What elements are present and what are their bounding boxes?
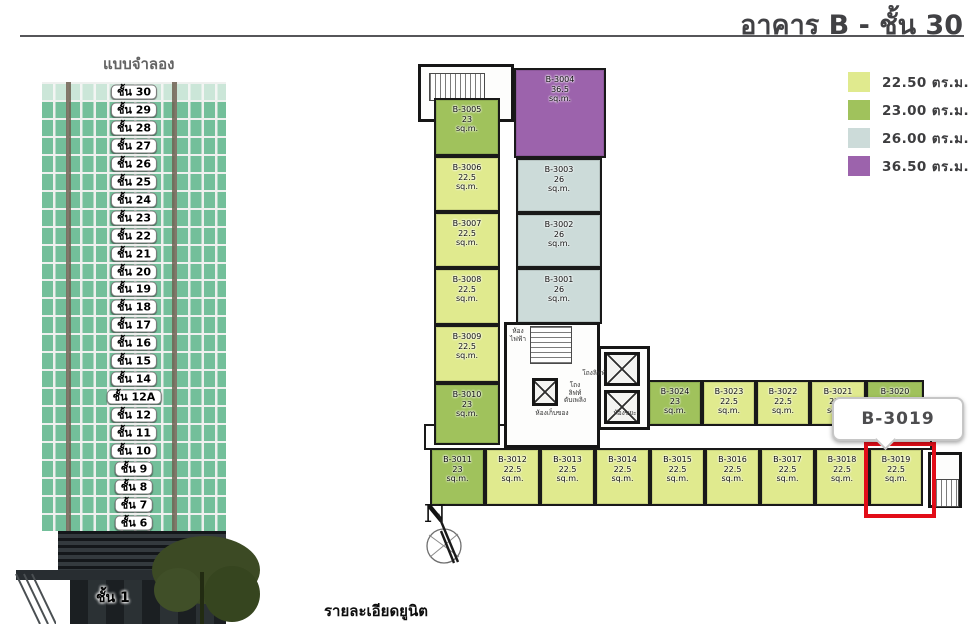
unit-area-label: 23 — [436, 115, 498, 125]
unit-id-label: B-3002 — [518, 220, 600, 230]
unit-area-label: 22.5 — [758, 397, 808, 407]
unit-id-label: B-3008 — [436, 275, 498, 285]
unit-id-label: B-3013 — [542, 455, 593, 465]
floor-label-10: ชั้น 10 — [111, 444, 157, 459]
unit-B-3003[interactable]: B-300326sq.m. — [516, 158, 602, 213]
unit-id-label: B-3018 — [817, 455, 867, 465]
floor-label-15: ชั้น 15 — [111, 354, 157, 369]
floorplan-page: อาคาร B - ชั้น 30 แบบจำลอง ชั้น 30ชั้น 2… — [0, 0, 979, 624]
unit-sqm-label: sq.m. — [432, 474, 483, 484]
unit-id-label: B-3020 — [868, 387, 922, 397]
elevator-shaft-icon — [604, 352, 640, 386]
legend-label: 36.50 ตร.ม. — [882, 155, 969, 177]
unit-sqm-label: sq.m. — [817, 474, 867, 484]
unit-sqm-label: sq.m. — [707, 474, 758, 484]
core-room-label-0: ห้อง ไฟฟ้า — [505, 328, 531, 343]
unit-B-3007[interactable]: B-300722.5sq.m. — [434, 212, 500, 268]
unit-area-label: 22.5 — [762, 465, 813, 475]
unit-B-3023[interactable]: B-302322.5sq.m. — [702, 380, 756, 426]
tower-mullion — [66, 82, 71, 531]
unit-B-3005[interactable]: B-300523sq.m. — [434, 98, 500, 156]
legend-swatch-icon — [848, 156, 870, 176]
stairs-icon — [935, 479, 959, 507]
unit-B-3004[interactable]: B-300436.5sq.m. — [514, 68, 606, 158]
core-room-label-4: ห้องขยะ — [608, 410, 642, 418]
unit-area-label: 22.5 — [436, 229, 498, 239]
unit-sqm-label: sq.m. — [436, 182, 498, 192]
floor-label-17: ชั้น 17 — [111, 318, 157, 333]
unit-B-3017[interactable]: B-301722.5sq.m. — [760, 448, 815, 506]
legend-label: 23.00 ตร.ม. — [882, 99, 969, 121]
elevator-shaft-icon — [532, 378, 558, 406]
floor-label-16: ชั้น 16 — [111, 336, 157, 351]
ground-floor-label: ชั้น 1 — [96, 587, 130, 609]
unit-sqm-label: sq.m. — [436, 238, 498, 248]
unit-sqm-label: sq.m. — [650, 406, 700, 416]
unit-sqm-label: sq.m. — [518, 184, 600, 194]
unit-B-3015[interactable]: B-301522.5sq.m. — [650, 448, 705, 506]
unit-B-3016[interactable]: B-301622.5sq.m. — [705, 448, 760, 506]
unit-id-label: B-3004 — [516, 75, 604, 85]
unit-id-label: B-3017 — [762, 455, 813, 465]
unit-area-label: 22.5 — [817, 465, 867, 475]
floor-label-7: ชั้น 7 — [115, 497, 153, 512]
compass-icon: N — [414, 498, 476, 574]
unit-area-label: 23 — [650, 397, 700, 407]
footer-caption: รายละเอียดยูนิต — [324, 599, 428, 623]
legend-swatch-icon — [848, 72, 870, 92]
unit-B-3001[interactable]: B-300126sq.m. — [516, 268, 602, 324]
model-title: แบบจำลอง — [103, 52, 174, 76]
unit-id-label: B-3016 — [707, 455, 758, 465]
podium-strut-lines — [14, 572, 56, 624]
unit-B-3022[interactable]: B-302222.5sq.m. — [756, 380, 810, 426]
floor-label-29: ชั้น 29 — [111, 102, 157, 117]
unit-id-label: B-3023 — [704, 387, 754, 397]
core-room-label-2: โถง ลิฟท์ ดับเพลิง — [562, 382, 588, 405]
floor-label-14: ชั้น 14 — [111, 372, 157, 387]
unit-id-label: B-3009 — [436, 332, 498, 342]
unit-area-label: 26 — [518, 230, 600, 240]
unit-id-label: B-3024 — [650, 387, 700, 397]
unit-area-label: 22.5 — [436, 285, 498, 295]
legend-swatch-icon — [848, 128, 870, 148]
unit-id-label: B-3021 — [812, 387, 864, 397]
unit-area-label: 23 — [432, 465, 483, 475]
unit-id-label: B-3015 — [652, 455, 703, 465]
unit-sqm-label: sq.m. — [436, 294, 498, 304]
unit-sqm-label: sq.m. — [518, 294, 600, 304]
core-room-label-3: ห้องเก็บของ — [527, 410, 577, 418]
unit-B-3012[interactable]: B-301222.5sq.m. — [485, 448, 540, 506]
unit-callout: B-3019 — [832, 397, 964, 441]
unit-B-3018[interactable]: B-301822.5sq.m. — [815, 448, 869, 506]
legend-item-0: 22.50 ตร.ม. — [848, 72, 969, 92]
unit-sqm-label: sq.m. — [652, 474, 703, 484]
unit-id-label: B-3011 — [432, 455, 483, 465]
unit-area-label: 36.5 — [516, 85, 604, 95]
unit-sqm-label: sq.m. — [542, 474, 593, 484]
area-legend: 22.50 ตร.ม.23.00 ตร.ม.26.00 ตร.ม.36.50 ต… — [848, 72, 969, 184]
unit-id-label: B-3001 — [518, 275, 600, 285]
unit-sqm-label: sq.m. — [516, 94, 604, 104]
unit-sqm-label: sq.m. — [436, 124, 498, 134]
unit-B-3009[interactable]: B-300922.5sq.m. — [434, 325, 500, 383]
unit-callout-label: B-3019 — [861, 409, 934, 429]
unit-area-label: 22.5 — [542, 465, 593, 475]
floor-label-18: ชั้น 18 — [111, 300, 157, 315]
unit-id-label: B-3007 — [436, 219, 498, 229]
floor-label-24: ชั้น 24 — [111, 192, 157, 207]
page-title: อาคาร B - ชั้น 30 — [740, 3, 963, 46]
floor-label-11: ชั้น 11 — [111, 426, 157, 441]
floor-label-19: ชั้น 19 — [111, 282, 157, 297]
unit-id-label: B-3012 — [487, 455, 538, 465]
legend-item-3: 36.50 ตร.ม. — [848, 156, 969, 176]
unit-B-3006[interactable]: B-300622.5sq.m. — [434, 156, 500, 212]
unit-area-label: 22.5 — [487, 465, 538, 475]
unit-area-label: 22.5 — [707, 465, 758, 475]
unit-area-label: 26 — [518, 285, 600, 295]
unit-area-label: 22.5 — [704, 397, 754, 407]
legend-label: 26.00 ตร.ม. — [882, 127, 969, 149]
unit-B-3002[interactable]: B-300226sq.m. — [516, 213, 602, 268]
stairs-icon — [530, 326, 572, 364]
floor-label-6: ชั้น 6 — [115, 515, 153, 530]
floor-label-30: ชั้น 30 — [111, 84, 157, 99]
unit-id-label: B-3022 — [758, 387, 808, 397]
legend-item-2: 26.00 ตร.ม. — [848, 128, 969, 148]
unit-sqm-label: sq.m. — [758, 406, 808, 416]
unit-area-label: 26 — [518, 175, 600, 185]
stairs-icon — [429, 73, 485, 101]
unit-B-3008[interactable]: B-300822.5sq.m. — [434, 268, 500, 325]
floor-label-20: ชั้น 20 — [111, 264, 157, 279]
floor-label-28: ชั้น 28 — [111, 120, 157, 135]
floor-label-12: ชั้น 12 — [111, 408, 157, 423]
unit-area-label: 23 — [436, 400, 498, 410]
unit-id-label: B-3003 — [518, 165, 600, 175]
unit-sqm-label: sq.m. — [597, 474, 648, 484]
unit-sqm-label: sq.m. — [436, 351, 498, 361]
unit-area-label: 22.5 — [652, 465, 703, 475]
unit-B-3014[interactable]: B-301422.5sq.m. — [595, 448, 650, 506]
unit-B-3010[interactable]: B-301023sq.m. — [434, 383, 500, 445]
legend-item-1: 23.00 ตร.ม. — [848, 100, 969, 120]
elevator-shaft-icon — [604, 390, 640, 424]
floor-label-21: ชั้น 21 — [111, 246, 157, 261]
floor-label-22: ชั้น 22 — [111, 228, 157, 243]
floor-label-25: ชั้น 25 — [111, 174, 157, 189]
unit-sqm-label: sq.m. — [518, 239, 600, 249]
unit-sqm-label: sq.m. — [436, 409, 498, 419]
unit-id-label: B-3005 — [436, 105, 498, 115]
unit-sqm-label: sq.m. — [487, 474, 538, 484]
unit-sqm-label: sq.m. — [704, 406, 754, 416]
core-room-label-1: โถงลิฟท์ — [576, 370, 612, 378]
unit-id-label: B-3006 — [436, 163, 498, 173]
unit-id-label: B-3014 — [597, 455, 648, 465]
unit-B-3013[interactable]: B-301322.5sq.m. — [540, 448, 595, 506]
tower-mullion — [172, 82, 177, 531]
legend-label: 22.50 ตร.ม. — [882, 71, 969, 93]
floor-label-26: ชั้น 26 — [111, 156, 157, 171]
title-underline — [20, 35, 964, 37]
unit-area-label: 22.5 — [597, 465, 648, 475]
legend-swatch-icon — [848, 100, 870, 120]
unit-B-3024[interactable]: B-302423sq.m. — [648, 380, 702, 426]
floor-label-8: ชั้น 8 — [115, 479, 153, 494]
unit-sqm-label: sq.m. — [762, 474, 813, 484]
floor-label-27: ชั้น 27 — [111, 138, 157, 153]
floor-label-9: ชั้น 9 — [115, 461, 153, 476]
unit-area-label: 22.5 — [436, 342, 498, 352]
selected-unit-highlight — [864, 442, 936, 518]
unit-id-label: B-3010 — [436, 390, 498, 400]
unit-area-label: 22.5 — [436, 173, 498, 183]
floor-label-23: ชั้น 23 — [111, 210, 157, 225]
tree-icon — [148, 532, 260, 624]
floor-label-12A: ชั้น 12A — [107, 390, 162, 405]
